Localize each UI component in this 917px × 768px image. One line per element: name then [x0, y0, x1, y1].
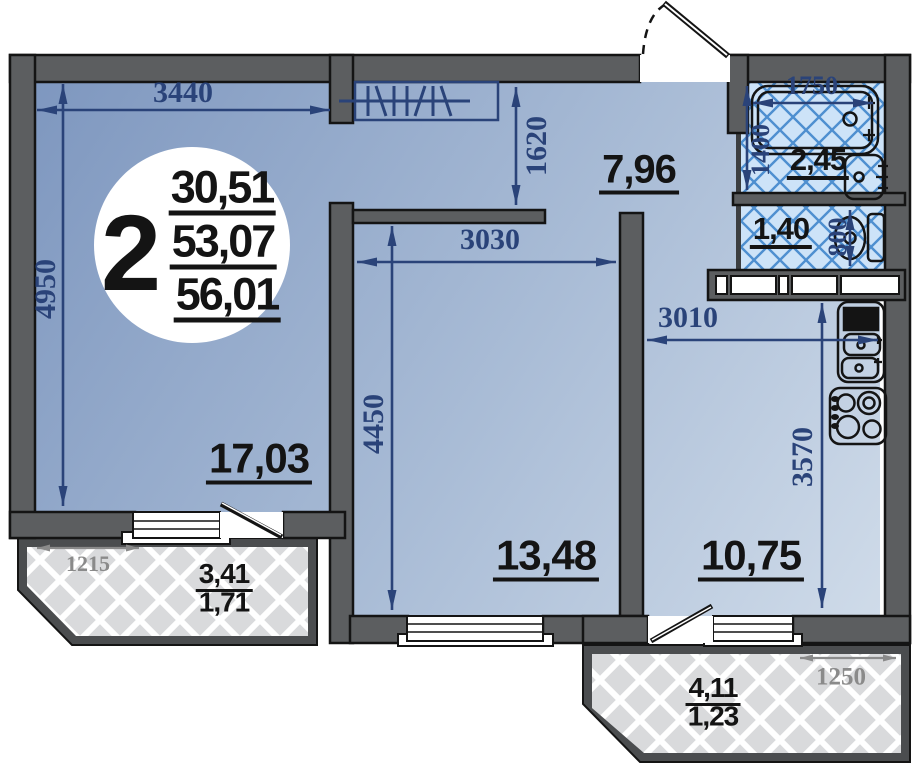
floor-plan-drawing [0, 0, 917, 768]
living-window-icon [122, 512, 230, 544]
dim-living-height: 4950 [31, 259, 61, 319]
area-label-hall: 7,96 [599, 150, 679, 195]
dim-wc-width: 800 [825, 218, 851, 257]
balcony-left [18, 538, 317, 645]
rooms-count: 2 [101, 199, 161, 307]
kitchen-window-icon [704, 616, 802, 646]
dim-kitchen-width: 3010 [658, 303, 718, 333]
entrance-door-icon [640, 3, 730, 82]
area-label-bedroom: 13,48 [493, 535, 599, 582]
floor-plan: 2 30,51 53,07 56,01 17,03 13,48 10,75 7,… [0, 0, 917, 768]
area-label-bathroom: 2,45 [787, 144, 849, 180]
area-label-living: 17,03 [206, 438, 312, 485]
dim-balcony-left: 1215 [66, 553, 110, 575]
area-label-wc: 1,40 [750, 213, 812, 249]
dim-balcony-right: 1250 [816, 665, 866, 690]
dim-living-width: 3440 [153, 78, 213, 108]
dim-bedroom-height: 4450 [359, 394, 389, 454]
balcony-left-area-reduced: 1,71 [196, 589, 253, 618]
dim-bath-width: 1750 [786, 73, 838, 99]
total-area: 56,01 [174, 272, 281, 323]
dim-hall-depth: 1620 [522, 116, 552, 176]
area-no-balcony: 53,07 [170, 219, 277, 270]
balcony-right-area-reduced: 1,23 [685, 703, 742, 732]
bedroom-window-icon [398, 616, 553, 646]
area-label-kitchen: 10,75 [698, 535, 804, 582]
dim-bath-height: 1400 [748, 124, 774, 176]
dim-kitchen-height: 3570 [788, 427, 818, 487]
living-area-total: 30,51 [169, 165, 276, 216]
hall-cabinet-band [708, 270, 905, 300]
dim-bedroom-width: 3030 [460, 225, 520, 255]
